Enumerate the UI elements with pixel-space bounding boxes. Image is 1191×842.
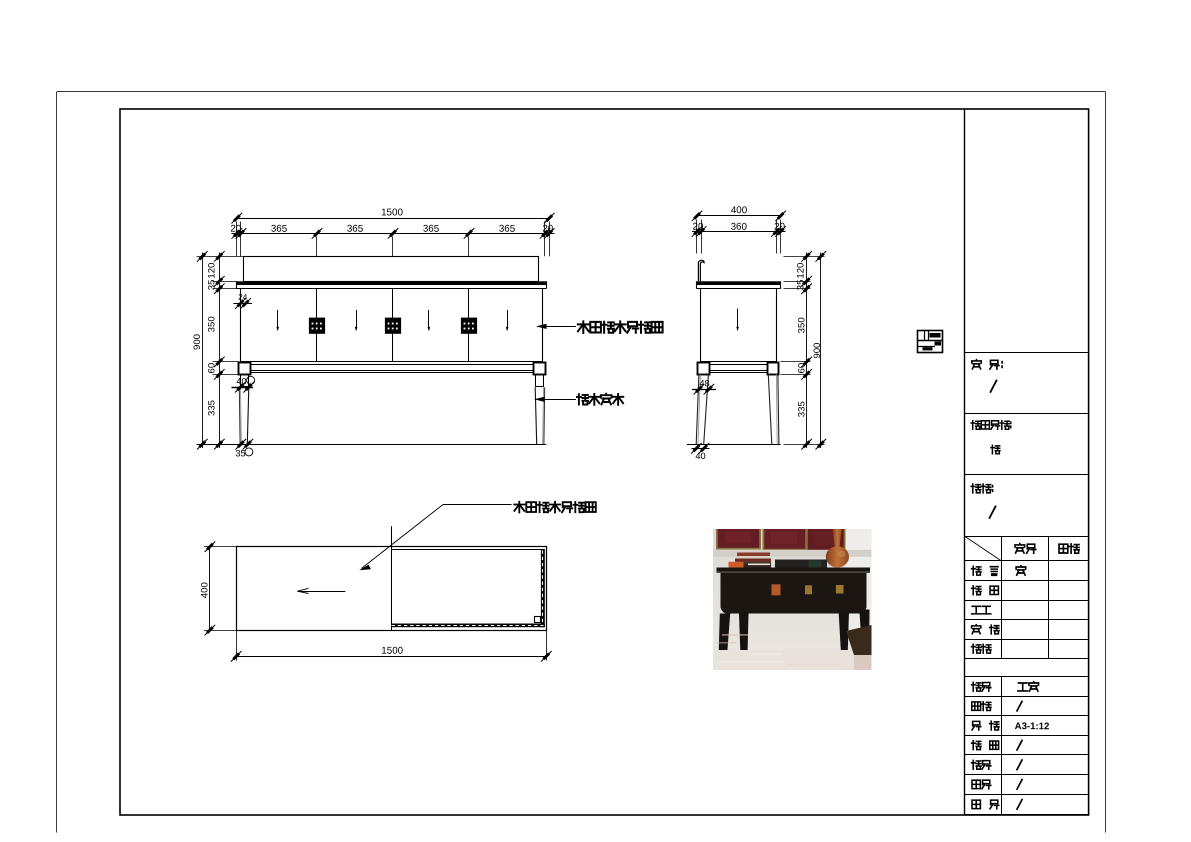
svg-text:60: 60 — [207, 363, 218, 374]
svg-text:335: 335 — [797, 401, 808, 417]
svg-text:365: 365 — [271, 224, 288, 235]
svg-text:24: 24 — [238, 293, 248, 302]
svg-text:900: 900 — [192, 334, 203, 350]
svg-text:20: 20 — [774, 222, 785, 233]
svg-text:35: 35 — [207, 280, 218, 291]
svg-text:400: 400 — [731, 205, 748, 216]
svg-text:365: 365 — [347, 224, 364, 235]
svg-text:400: 400 — [199, 582, 210, 598]
svg-text:20: 20 — [230, 224, 241, 235]
svg-text:1500: 1500 — [381, 207, 403, 218]
svg-text:48: 48 — [699, 378, 709, 388]
svg-text:1500: 1500 — [381, 646, 403, 657]
svg-text:40: 40 — [695, 451, 705, 461]
svg-text:20: 20 — [542, 224, 553, 235]
svg-text:35: 35 — [235, 448, 245, 458]
svg-text:A3-1:12: A3-1:12 — [1015, 721, 1050, 732]
svg-text:365: 365 — [499, 224, 516, 235]
svg-text:60: 60 — [797, 363, 808, 374]
svg-text:350: 350 — [797, 317, 808, 333]
svg-text:335: 335 — [207, 400, 218, 416]
svg-text:360: 360 — [731, 222, 748, 233]
svg-text:900: 900 — [812, 343, 823, 359]
svg-text:120: 120 — [796, 263, 807, 279]
svg-text:35: 35 — [796, 280, 807, 291]
svg-text:40: 40 — [236, 376, 246, 386]
svg-text:365: 365 — [423, 224, 440, 235]
svg-text:120: 120 — [207, 263, 218, 279]
svg-text:350: 350 — [207, 316, 218, 332]
svg-text:20: 20 — [693, 222, 704, 233]
